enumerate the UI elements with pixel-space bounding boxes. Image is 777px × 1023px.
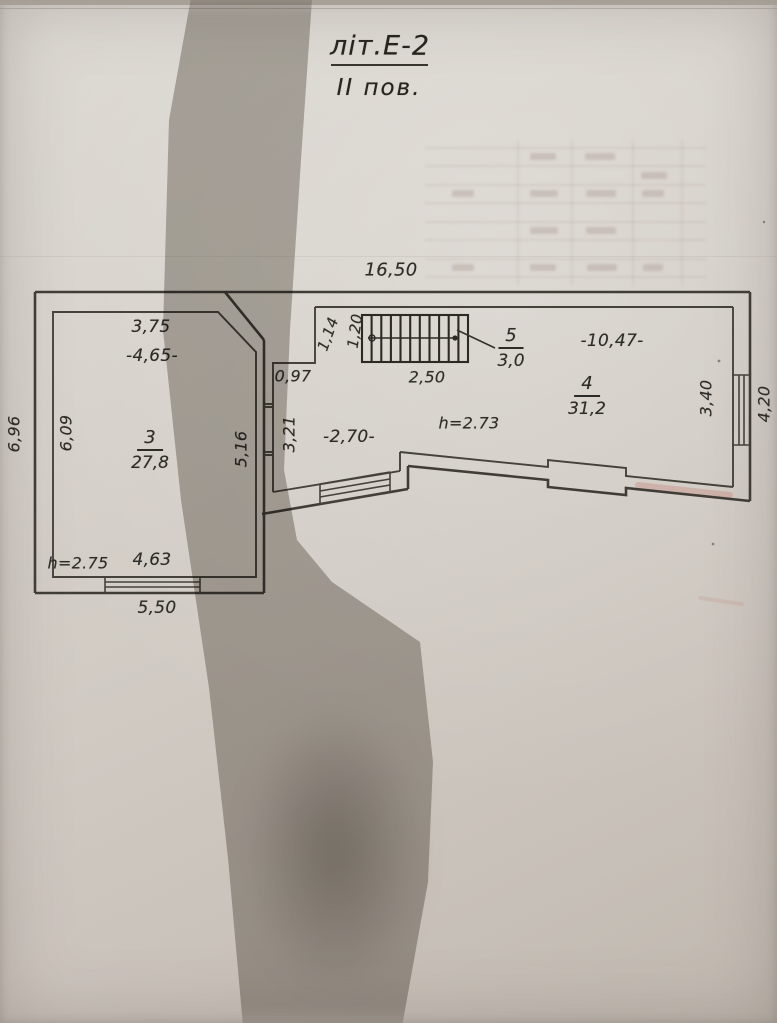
- room3-area: 27,8: [131, 453, 169, 473]
- dim-total-width: 16,50: [364, 260, 417, 281]
- dim-corridor-width: -2,70-: [323, 427, 375, 447]
- room5-leader-line: [457, 330, 495, 348]
- drawing-title: літ.Е-2: [330, 31, 430, 62]
- red-marker-smear: [638, 485, 742, 604]
- room4-label: 4 31,2: [568, 373, 606, 419]
- dim-left-inner: 6,09: [57, 415, 76, 452]
- room3-number: 3: [137, 427, 162, 451]
- dim-corridor-left: 3,21: [280, 416, 299, 453]
- room3-height: h=2.75: [48, 554, 109, 573]
- floor-plan-photo: літ.Е-2 ІІ пов. 16,50 3,75 -4,65- 6,96 6…: [0, 0, 777, 1023]
- title-underline: [331, 64, 428, 66]
- window-room3: [105, 577, 200, 593]
- room4-number: 4: [574, 373, 599, 397]
- window-room4: [733, 375, 750, 445]
- dim-left-outer: 6,96: [5, 416, 24, 453]
- room4-area: 31,2: [568, 399, 606, 419]
- dim-room4-length: -10,47-: [580, 331, 643, 351]
- dim-room3-top-inner: -4,65-: [126, 346, 178, 366]
- building-label: літ.Е-2: [330, 31, 430, 62]
- room3-label: 3 27,8: [131, 427, 169, 473]
- dim-room3-window: 4,63: [132, 550, 171, 570]
- room5-area: 3,0: [497, 351, 524, 371]
- dim-room3-right: 5,16: [232, 431, 251, 468]
- room5-label: 5 3,0: [497, 325, 524, 371]
- staircase: [362, 315, 468, 362]
- dim-room3-top: 3,75: [131, 317, 170, 337]
- dim-room3-bottom: 5,50: [137, 598, 176, 618]
- room5-number: 5: [498, 325, 523, 349]
- dim-right-outer: 4,20: [755, 386, 774, 423]
- dim-stair-length: 2,50: [409, 368, 446, 387]
- dim-corridor-step: 0,97: [275, 367, 312, 386]
- floor-plan-drawing: [0, 0, 777, 1023]
- room4-height: h=2.73: [439, 414, 500, 433]
- floor-label: ІІ пов.: [337, 75, 422, 101]
- dim-room4-right: 3,40: [697, 380, 716, 417]
